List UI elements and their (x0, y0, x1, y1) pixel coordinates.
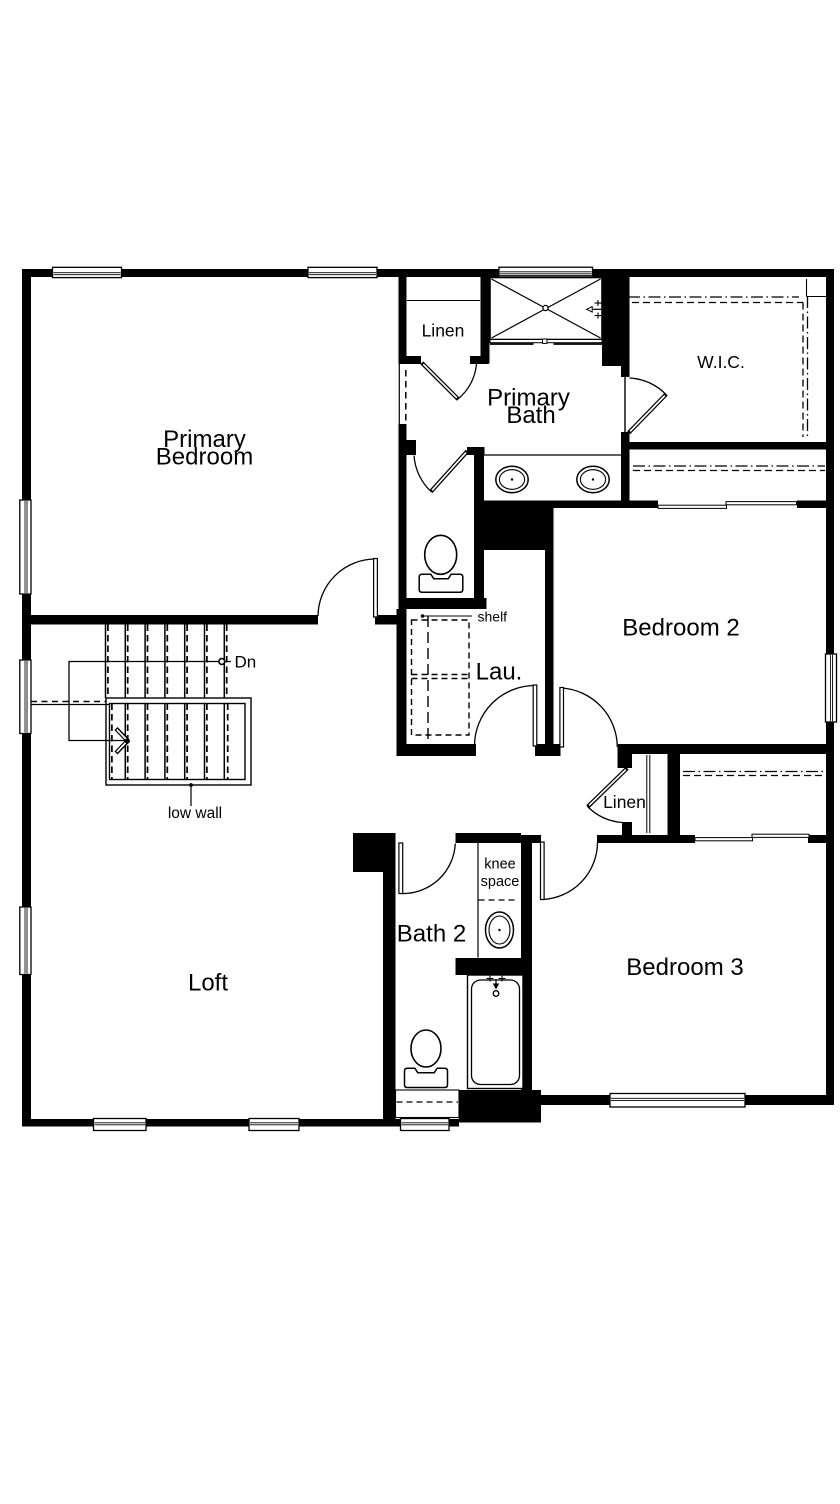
svg-text:Bath 2: Bath 2 (397, 921, 466, 948)
svg-text:Linen: Linen (603, 792, 646, 812)
svg-text:Loft: Loft (188, 969, 228, 996)
svg-text:Bedroom: Bedroom (156, 444, 253, 471)
svg-text:Linen: Linen (422, 321, 465, 341)
svg-text:knee: knee (484, 857, 515, 873)
svg-text:shelf: shelf (478, 609, 508, 625)
svg-text:Dn: Dn (235, 653, 257, 672)
svg-text:Lau.: Lau. (476, 658, 523, 685)
svg-text:Bedroom 2: Bedroom 2 (622, 615, 739, 642)
svg-text:Bedroom 3: Bedroom 3 (626, 954, 743, 981)
svg-text:space: space (481, 874, 520, 890)
svg-text:Bath: Bath (506, 402, 555, 429)
svg-text:low wall: low wall (168, 805, 222, 822)
svg-text:W.I.C.: W.I.C. (697, 352, 745, 372)
